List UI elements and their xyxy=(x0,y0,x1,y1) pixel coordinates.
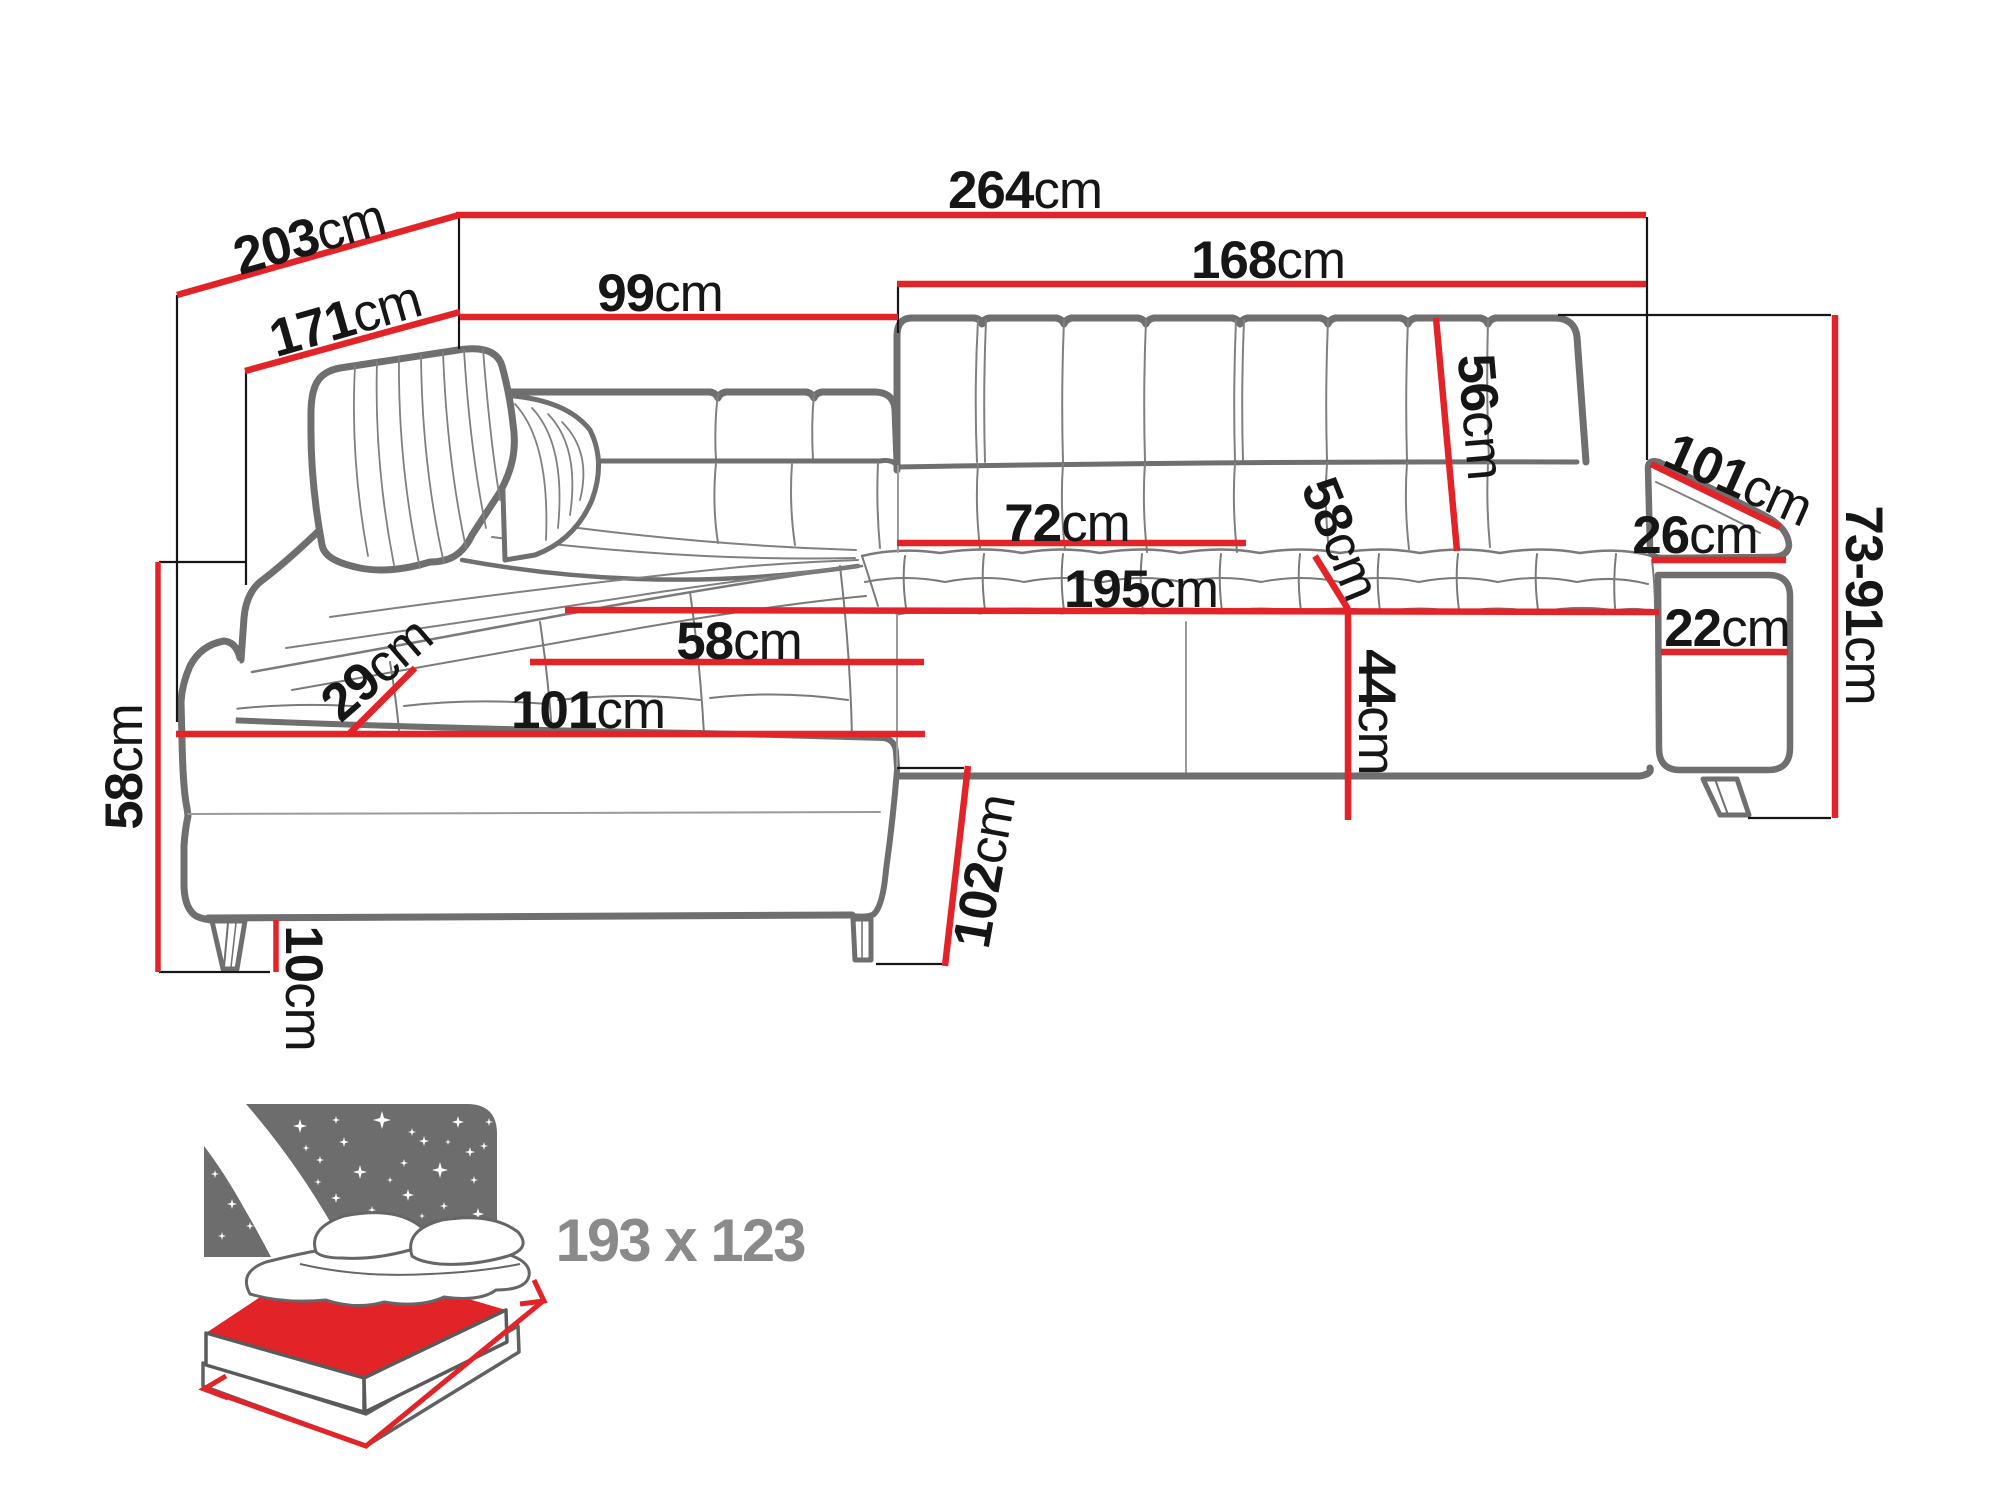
svg-text:168cm: 168cm xyxy=(1191,231,1345,290)
svg-text:195cm: 195cm xyxy=(1064,560,1218,619)
svg-text:58cm: 58cm xyxy=(95,704,154,830)
svg-text:10cm: 10cm xyxy=(274,925,333,1051)
svg-text:193 x 123: 193 x 123 xyxy=(556,1207,806,1274)
svg-text:26cm: 26cm xyxy=(1632,506,1758,565)
svg-text:22cm: 22cm xyxy=(1664,599,1790,658)
svg-text:44cm: 44cm xyxy=(1347,649,1406,775)
svg-text:72cm: 72cm xyxy=(1004,494,1130,553)
svg-text:56cm: 56cm xyxy=(1446,352,1516,482)
svg-text:73-91cm: 73-91cm xyxy=(1834,505,1893,704)
svg-text:58cm: 58cm xyxy=(676,612,802,671)
svg-text:101cm: 101cm xyxy=(511,681,665,740)
svg-text:264cm: 264cm xyxy=(948,161,1102,220)
svg-text:99cm: 99cm xyxy=(597,264,723,323)
